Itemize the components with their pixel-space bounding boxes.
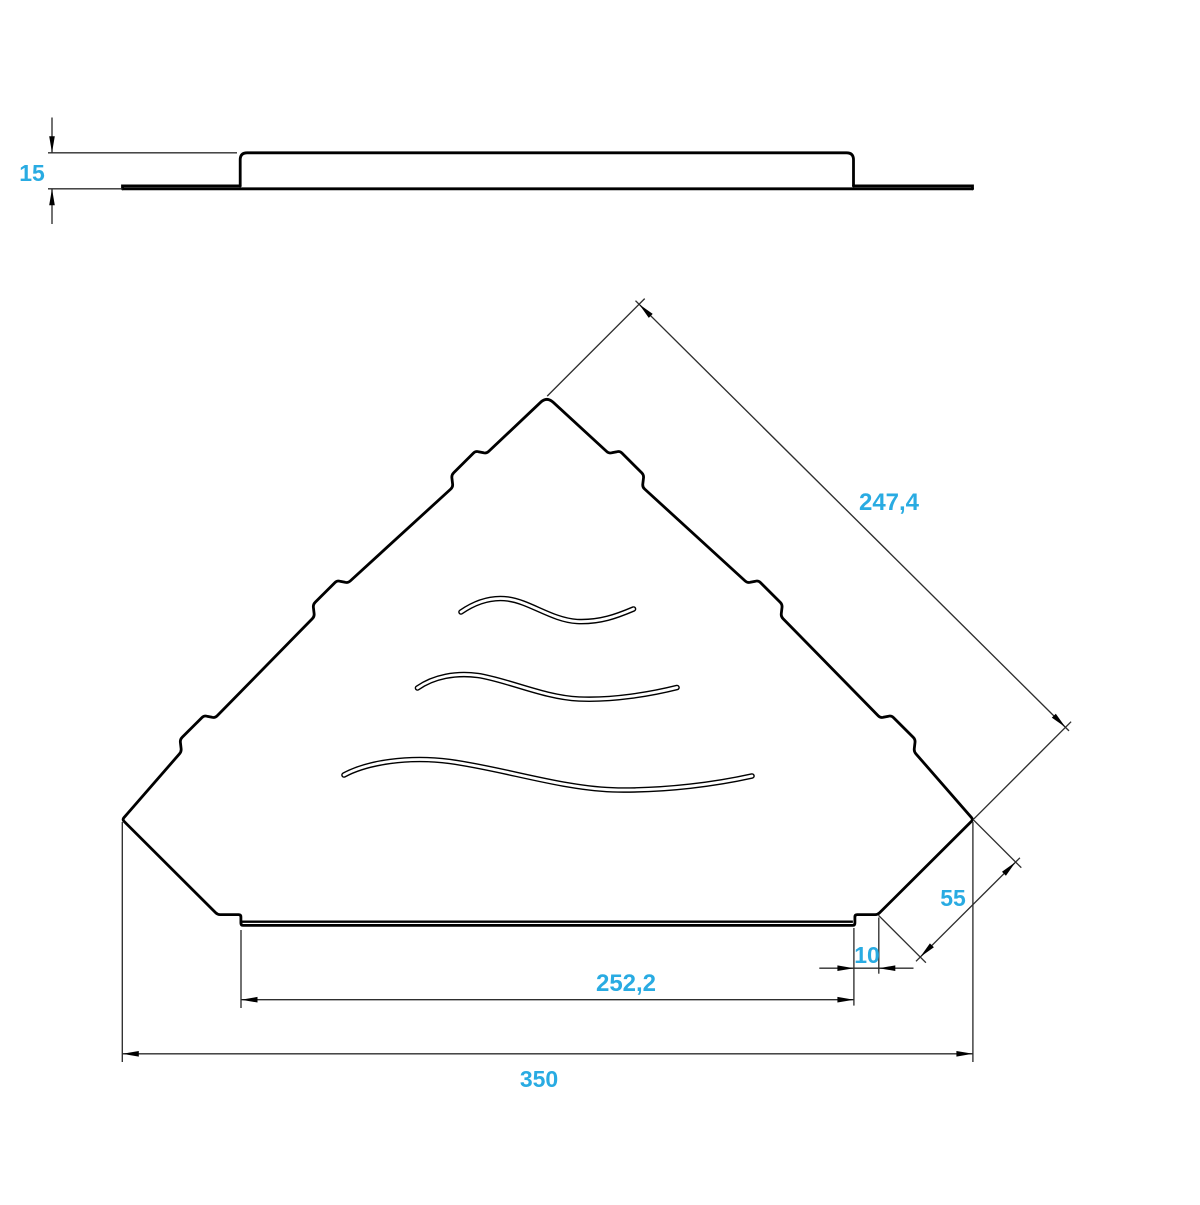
svg-text:350: 350 xyxy=(520,1066,558,1092)
svg-text:247,4: 247,4 xyxy=(859,489,920,516)
svg-text:15: 15 xyxy=(19,160,45,186)
svg-text:55: 55 xyxy=(940,885,966,911)
svg-text:10: 10 xyxy=(854,942,880,968)
svg-text:252,2: 252,2 xyxy=(596,970,656,997)
